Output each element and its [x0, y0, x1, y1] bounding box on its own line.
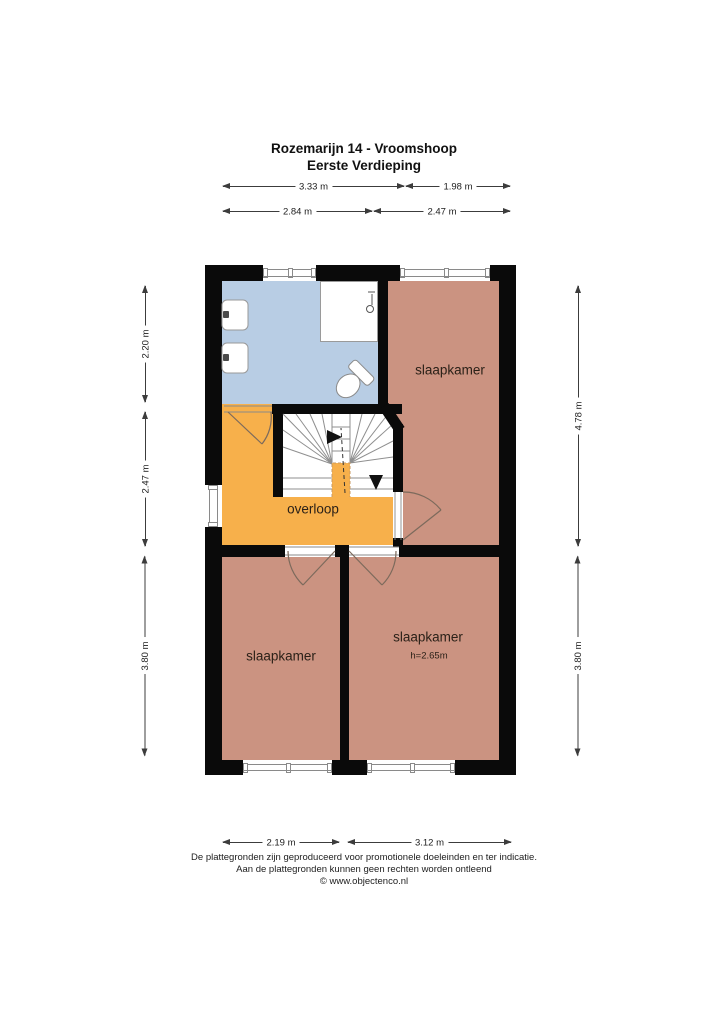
shower-head-icon	[367, 292, 376, 313]
floor-plan-page: Rozemarijn 14 - Vroomshoop Eerste Verdie…	[0, 0, 728, 1030]
stair-void	[332, 463, 350, 497]
dim-right-4_78: 4.78 m	[572, 285, 584, 547]
footer-disclaimer-line1: De plattegronden zijn geproduceerd voor …	[0, 852, 728, 863]
dim-top-1_98: 1.98 m	[405, 180, 511, 192]
dim-top-2_84: 2.84 m	[222, 205, 373, 217]
dim-bottom-3_12: 3.12 m	[347, 836, 512, 848]
room-label-bedroom-bottom-left: slaapkamer	[246, 649, 316, 664]
dim-left-2_47: 2.47 m	[139, 411, 151, 547]
dim-left-3_80: 3.80 m	[139, 556, 151, 757]
dim-left-2_20: 2.20 m	[139, 285, 151, 403]
dim-top-2_47: 2.47 m	[373, 205, 511, 217]
door-bedroom-bottom-left	[288, 551, 335, 585]
sink-icon	[222, 300, 248, 330]
room-label-bedroom-bottom-right: slaapkamer	[393, 630, 463, 645]
door-bathroom	[228, 412, 271, 444]
room-label-bedroom-top-right: slaapkamer	[415, 363, 485, 378]
dim-right-3_80: 3.80 m	[572, 556, 584, 757]
room-label-landing: overloop	[287, 502, 339, 517]
door-bedroom-top-right	[403, 492, 441, 540]
room-height-note: h=2.65m	[410, 651, 447, 662]
footer-disclaimer-line2: Aan de plattegronden kunnen geen rechten…	[0, 864, 728, 875]
door-bedroom-bottom-right	[349, 551, 396, 585]
dim-bottom-2_19: 2.19 m	[222, 836, 340, 848]
sink-icon	[222, 343, 248, 373]
toilet-icon	[329, 359, 375, 405]
footer-copyright: © www.objectenco.nl	[0, 876, 728, 887]
dim-top-3_33: 3.33 m	[222, 180, 405, 192]
